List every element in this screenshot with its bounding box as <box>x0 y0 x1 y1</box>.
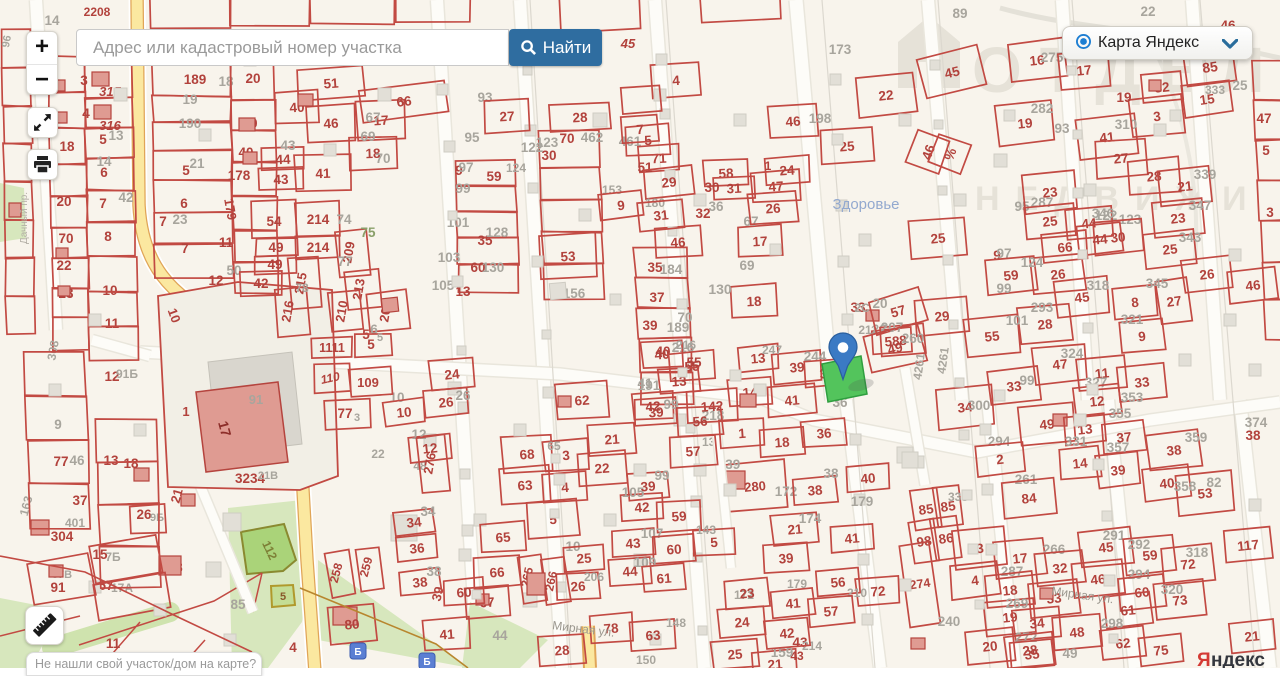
svg-text:318: 318 <box>1186 545 1209 560</box>
svg-text:2208: 2208 <box>84 5 111 19</box>
svg-text:18: 18 <box>59 139 75 154</box>
svg-text:320: 320 <box>1161 582 1184 597</box>
svg-text:59: 59 <box>486 169 501 184</box>
svg-text:68: 68 <box>519 446 536 462</box>
svg-text:70: 70 <box>58 231 73 246</box>
svg-text:18: 18 <box>746 294 762 310</box>
svg-text:24: 24 <box>779 162 796 178</box>
svg-text:20: 20 <box>872 296 887 311</box>
svg-text:99: 99 <box>1019 373 1034 388</box>
svg-text:78: 78 <box>295 281 309 295</box>
svg-text:333: 333 <box>1205 83 1225 97</box>
svg-text:53: 53 <box>560 249 576 265</box>
svg-text:29: 29 <box>661 174 678 190</box>
svg-text:17: 17 <box>1076 62 1093 78</box>
svg-text:358: 358 <box>1174 479 1197 494</box>
svg-text:19: 19 <box>1017 115 1034 131</box>
svg-text:26: 26 <box>438 394 455 411</box>
svg-text:49: 49 <box>268 240 283 255</box>
svg-text:214: 214 <box>307 212 330 227</box>
svg-text:26: 26 <box>765 200 782 216</box>
svg-text:304: 304 <box>51 529 74 544</box>
svg-text:109: 109 <box>357 375 379 390</box>
svg-text:21В: 21В <box>258 470 278 482</box>
svg-text:60: 60 <box>666 541 682 557</box>
svg-text:260: 260 <box>902 331 925 346</box>
svg-text:43: 43 <box>280 138 296 153</box>
svg-text:99: 99 <box>654 468 669 483</box>
svg-text:74: 74 <box>336 212 352 227</box>
svg-text:39: 39 <box>1110 462 1127 478</box>
svg-text:89: 89 <box>952 6 967 21</box>
svg-text:42: 42 <box>253 276 268 291</box>
svg-text:96: 96 <box>0 34 14 48</box>
svg-text:266: 266 <box>1043 542 1066 557</box>
svg-text:93: 93 <box>1054 121 1070 136</box>
svg-text:36: 36 <box>409 540 426 557</box>
svg-text:56: 56 <box>830 574 847 590</box>
svg-text:3: 3 <box>1266 205 1274 220</box>
svg-text:82: 82 <box>1206 475 1221 490</box>
svg-text:39: 39 <box>789 359 805 375</box>
svg-text:275: 275 <box>1041 50 1064 65</box>
svg-text:179: 179 <box>851 494 874 509</box>
svg-text:7: 7 <box>159 214 167 229</box>
svg-text:10: 10 <box>396 404 413 420</box>
svg-text:36: 36 <box>708 199 724 214</box>
svg-text:184: 184 <box>660 262 683 277</box>
svg-text:240: 240 <box>938 614 961 629</box>
svg-text:46: 46 <box>785 113 802 129</box>
svg-text:8: 8 <box>104 229 112 244</box>
svg-text:31: 31 <box>726 181 742 197</box>
svg-text:93: 93 <box>477 90 493 105</box>
svg-text:7: 7 <box>99 196 107 211</box>
svg-text:91Б: 91Б <box>116 367 138 381</box>
svg-text:247: 247 <box>762 343 782 357</box>
svg-text:293: 293 <box>1031 300 1054 315</box>
svg-text:10: 10 <box>102 283 117 298</box>
svg-text:26: 26 <box>455 388 471 403</box>
svg-text:353: 353 <box>1121 390 1144 405</box>
svg-text:97: 97 <box>458 160 473 175</box>
svg-text:72: 72 <box>870 583 886 599</box>
svg-text:51: 51 <box>323 75 340 91</box>
svg-text:85: 85 <box>1201 58 1219 76</box>
svg-text:Здоровье: Здоровье <box>833 196 900 213</box>
svg-text:19: 19 <box>1116 90 1131 105</box>
svg-text:291: 291 <box>1103 528 1126 543</box>
svg-text:48: 48 <box>1069 624 1086 641</box>
svg-text:38: 38 <box>823 466 839 481</box>
svg-text:343: 343 <box>1179 230 1202 245</box>
svg-text:46: 46 <box>323 116 339 132</box>
svg-text:13: 13 <box>108 128 124 143</box>
svg-text:Дачный пр.: Дачный пр. <box>19 192 30 244</box>
svg-text:31: 31 <box>653 207 670 224</box>
svg-text:18: 18 <box>774 434 791 450</box>
svg-text:190: 190 <box>179 116 202 131</box>
svg-text:20: 20 <box>982 638 999 654</box>
svg-text:9: 9 <box>1138 329 1147 345</box>
svg-text:2: 2 <box>996 452 1005 468</box>
svg-text:32: 32 <box>1052 560 1069 576</box>
svg-text:54: 54 <box>266 214 282 229</box>
svg-text:4: 4 <box>82 106 90 121</box>
svg-text:36: 36 <box>816 425 833 441</box>
svg-text:25: 25 <box>576 550 593 566</box>
svg-text:41: 41 <box>315 166 331 182</box>
svg-text:21: 21 <box>1177 178 1194 195</box>
svg-text:67: 67 <box>365 110 380 125</box>
svg-text:49: 49 <box>1062 646 1077 661</box>
svg-text:75: 75 <box>1153 642 1170 659</box>
svg-text:148: 148 <box>666 616 686 630</box>
svg-text:62: 62 <box>574 392 590 408</box>
svg-text:38: 38 <box>1245 428 1261 443</box>
svg-text:178: 178 <box>228 168 251 183</box>
svg-text:58: 58 <box>718 166 734 182</box>
svg-text:66: 66 <box>489 564 506 580</box>
svg-text:77: 77 <box>337 406 352 421</box>
svg-text:25: 25 <box>1042 213 1059 230</box>
svg-text:66: 66 <box>1057 239 1074 256</box>
svg-text:41: 41 <box>439 626 456 642</box>
svg-text:24: 24 <box>444 366 461 383</box>
svg-text:216: 216 <box>676 338 696 352</box>
svg-text:174: 174 <box>799 511 822 526</box>
svg-text:41: 41 <box>1099 129 1116 146</box>
svg-text:6: 6 <box>100 165 108 180</box>
svg-text:318: 318 <box>1087 278 1110 293</box>
svg-text:65: 65 <box>495 529 512 545</box>
svg-text:321: 321 <box>1121 312 1144 327</box>
svg-text:25: 25 <box>1162 241 1179 258</box>
svg-text:95: 95 <box>464 130 480 145</box>
svg-text:310: 310 <box>1115 117 1138 132</box>
svg-text:23: 23 <box>172 212 188 227</box>
svg-text:91: 91 <box>249 392 263 407</box>
svg-text:122: 122 <box>521 140 544 155</box>
svg-text:359: 359 <box>1185 430 1208 445</box>
svg-text:105: 105 <box>622 485 645 500</box>
svg-text:91: 91 <box>50 580 66 595</box>
svg-text:71: 71 <box>651 151 667 167</box>
svg-text:1: 1 <box>182 404 189 419</box>
svg-text:41: 41 <box>784 392 801 408</box>
svg-text:21: 21 <box>189 156 205 171</box>
svg-text:11: 11 <box>106 636 121 651</box>
svg-text:43: 43 <box>625 535 642 551</box>
svg-text:28: 28 <box>572 110 588 126</box>
svg-text:9: 9 <box>54 417 62 432</box>
svg-text:42: 42 <box>118 190 133 205</box>
svg-text:24: 24 <box>734 614 751 630</box>
svg-text:33: 33 <box>1134 374 1151 391</box>
svg-text:11: 11 <box>105 316 120 331</box>
svg-text:105: 105 <box>432 278 455 293</box>
svg-text:6: 6 <box>180 196 188 211</box>
svg-text:14: 14 <box>1072 455 1089 472</box>
svg-text:5: 5 <box>280 591 286 603</box>
svg-text:25: 25 <box>930 230 947 246</box>
svg-text:99: 99 <box>455 181 470 196</box>
svg-text:189: 189 <box>184 72 207 87</box>
svg-text:39: 39 <box>778 550 794 566</box>
svg-text:41: 41 <box>844 530 861 546</box>
svg-text:27: 27 <box>1113 150 1129 166</box>
svg-text:39: 39 <box>648 404 664 420</box>
svg-text:14: 14 <box>44 13 60 28</box>
svg-text:60: 60 <box>456 584 472 600</box>
svg-text:63: 63 <box>517 477 534 493</box>
svg-text:44: 44 <box>492 628 508 643</box>
svg-text:26: 26 <box>1199 266 1216 283</box>
svg-text:29: 29 <box>934 308 950 324</box>
svg-text:40: 40 <box>654 346 670 362</box>
svg-text:47: 47 <box>1256 111 1271 126</box>
svg-text:143: 143 <box>696 523 716 537</box>
svg-text:22: 22 <box>371 447 385 461</box>
svg-text:39: 39 <box>642 318 657 333</box>
svg-text:23: 23 <box>739 585 756 601</box>
svg-text:5: 5 <box>367 337 375 352</box>
svg-text:130: 130 <box>708 281 732 297</box>
svg-text:40: 40 <box>860 470 876 486</box>
svg-text:43: 43 <box>273 172 289 188</box>
svg-text:61: 61 <box>656 570 673 586</box>
svg-text:7: 7 <box>181 241 189 256</box>
svg-text:5: 5 <box>377 332 383 344</box>
svg-text:9Б: 9Б <box>150 512 164 524</box>
svg-text:103: 103 <box>438 250 461 265</box>
svg-text:21: 21 <box>1244 628 1261 645</box>
svg-text:28: 28 <box>1022 642 1039 659</box>
svg-text:34: 34 <box>420 504 436 519</box>
svg-text:37: 37 <box>72 493 87 508</box>
svg-text:51: 51 <box>637 160 653 175</box>
svg-text:25: 25 <box>1232 78 1248 93</box>
svg-text:5: 5 <box>99 132 107 147</box>
svg-text:198: 198 <box>809 111 832 126</box>
svg-text:22: 22 <box>1140 4 1155 19</box>
svg-text:65: 65 <box>547 439 561 453</box>
svg-text:3: 3 <box>354 412 360 424</box>
svg-text:5: 5 <box>1262 143 1270 158</box>
svg-text:85: 85 <box>230 597 246 612</box>
svg-text:44: 44 <box>1092 231 1109 248</box>
svg-text:38: 38 <box>1166 442 1183 459</box>
svg-text:46: 46 <box>670 235 686 251</box>
svg-text:75: 75 <box>360 225 376 240</box>
svg-text:274: 274 <box>909 576 932 593</box>
svg-text:17: 17 <box>752 234 768 250</box>
svg-text:Б: Б <box>354 647 361 658</box>
svg-text:11: 11 <box>219 235 234 250</box>
svg-text:21: 21 <box>604 431 621 447</box>
svg-text:32: 32 <box>695 206 710 221</box>
svg-text:25: 25 <box>727 646 744 662</box>
svg-text:22: 22 <box>594 460 610 476</box>
svg-text:401: 401 <box>65 516 85 530</box>
svg-text:117: 117 <box>1236 537 1259 554</box>
svg-text:28: 28 <box>554 642 571 658</box>
svg-text:173: 173 <box>829 42 852 57</box>
svg-text:12: 12 <box>411 427 426 442</box>
svg-text:345: 345 <box>1146 276 1169 291</box>
svg-text:Б: Б <box>423 657 430 668</box>
svg-text:13: 13 <box>103 453 119 468</box>
svg-text:70: 70 <box>677 310 692 325</box>
svg-text:130: 130 <box>482 260 505 275</box>
svg-text:ндекс: ндекс <box>1211 650 1265 668</box>
svg-text:69: 69 <box>739 258 754 273</box>
svg-text:287: 287 <box>1031 195 1054 210</box>
svg-text:57: 57 <box>823 603 839 619</box>
svg-text:49: 49 <box>267 257 282 272</box>
svg-text:27: 27 <box>1166 293 1183 310</box>
svg-text:191: 191 <box>638 378 661 393</box>
svg-text:66: 66 <box>396 93 413 110</box>
svg-text:56: 56 <box>692 413 709 429</box>
svg-text:292: 292 <box>1128 537 1151 552</box>
svg-text:46: 46 <box>1245 277 1262 294</box>
svg-text:22: 22 <box>878 87 895 103</box>
svg-text:150: 150 <box>636 653 656 667</box>
svg-text:85: 85 <box>918 501 935 518</box>
svg-text:294: 294 <box>988 434 1011 449</box>
svg-text:95: 95 <box>1014 199 1030 214</box>
svg-text:1: 1 <box>765 159 772 173</box>
svg-text:30: 30 <box>704 180 719 195</box>
svg-text:347: 347 <box>1189 198 1212 213</box>
svg-text:7: 7 <box>636 122 645 137</box>
svg-text:84: 84 <box>1021 490 1038 507</box>
svg-text:42: 42 <box>634 499 650 515</box>
svg-text:3: 3 <box>80 73 88 88</box>
svg-text:99: 99 <box>996 281 1011 296</box>
svg-text:41: 41 <box>785 595 802 611</box>
svg-text:42: 42 <box>779 625 795 641</box>
svg-text:1111: 1111 <box>319 341 345 355</box>
svg-text:80: 80 <box>344 616 360 632</box>
svg-text:339: 339 <box>1194 167 1217 182</box>
svg-text:109: 109 <box>634 555 657 570</box>
svg-text:46: 46 <box>69 453 85 468</box>
svg-text:55: 55 <box>984 328 1001 345</box>
svg-text:282: 282 <box>1031 101 1054 116</box>
svg-text:37: 37 <box>649 290 664 305</box>
svg-text:128: 128 <box>486 225 509 240</box>
svg-text:27: 27 <box>499 109 515 125</box>
svg-text:294: 294 <box>1128 567 1151 582</box>
svg-text:77: 77 <box>53 454 68 469</box>
svg-text:462: 462 <box>581 130 604 145</box>
svg-text:124: 124 <box>506 161 526 175</box>
svg-text:4: 4 <box>289 640 297 655</box>
svg-text:153: 153 <box>602 183 622 197</box>
svg-text:12: 12 <box>1089 393 1106 409</box>
svg-text:70: 70 <box>375 151 390 166</box>
svg-text:9: 9 <box>617 198 626 214</box>
svg-text:20: 20 <box>56 194 71 209</box>
svg-text:124: 124 <box>1021 255 1044 270</box>
svg-text:38: 38 <box>426 564 442 579</box>
svg-text:22: 22 <box>56 258 71 273</box>
svg-text:210: 210 <box>847 586 867 600</box>
svg-text:59: 59 <box>671 508 687 524</box>
svg-text:300: 300 <box>968 398 991 413</box>
svg-text:214: 214 <box>307 240 330 255</box>
svg-text:63: 63 <box>645 627 662 643</box>
svg-text:30: 30 <box>541 148 556 163</box>
svg-text:57: 57 <box>685 443 701 459</box>
svg-text:70: 70 <box>559 131 574 146</box>
svg-text:28: 28 <box>1037 316 1054 333</box>
svg-text:69: 69 <box>360 129 375 144</box>
svg-text:355: 355 <box>1109 406 1132 421</box>
svg-text:77: 77 <box>337 254 352 269</box>
svg-text:346: 346 <box>1092 206 1115 221</box>
svg-text:45: 45 <box>620 36 636 51</box>
svg-text:23: 23 <box>1170 210 1187 227</box>
svg-text:7Б: 7Б <box>105 550 121 564</box>
svg-text:44: 44 <box>275 152 291 168</box>
svg-text:2C: 2C <box>854 301 870 315</box>
svg-text:38: 38 <box>807 482 824 498</box>
svg-text:12: 12 <box>208 273 223 288</box>
svg-text:19: 19 <box>182 92 197 107</box>
svg-text:206: 206 <box>584 570 604 584</box>
svg-text:20: 20 <box>245 71 260 86</box>
svg-text:19: 19 <box>1002 609 1019 625</box>
svg-text:101: 101 <box>1006 313 1029 328</box>
svg-text:Я: Я <box>1197 650 1211 668</box>
svg-text:280: 280 <box>744 478 767 495</box>
